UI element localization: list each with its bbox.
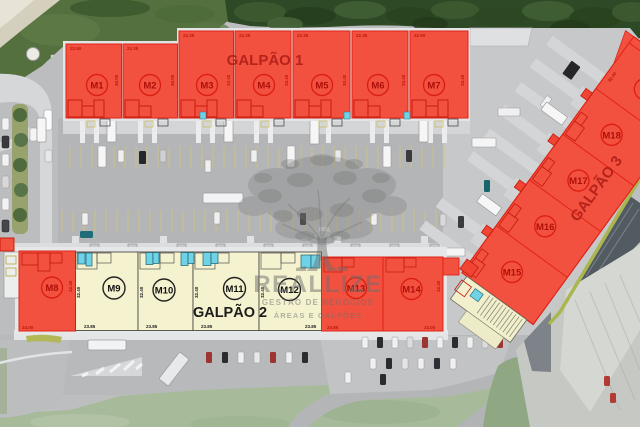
svg-text:M7: M7 [427, 81, 440, 92]
svg-text:33.40: 33.40 [226, 74, 231, 86]
svg-text:32.40: 32.40 [139, 286, 144, 298]
svg-text:32.40: 32.40 [436, 280, 441, 292]
svg-text:M4: M4 [257, 81, 271, 92]
svg-text:22.35: 22.35 [183, 33, 195, 38]
svg-text:M18: M18 [602, 130, 620, 141]
svg-text:22.50: 22.50 [70, 46, 82, 51]
svg-text:23.85: 23.85 [327, 325, 339, 330]
svg-text:32.40: 32.40 [76, 286, 81, 298]
svg-text:33.40: 33.40 [460, 74, 465, 86]
svg-text:M16: M16 [536, 222, 554, 233]
svg-text:M2: M2 [143, 81, 156, 92]
svg-text:M5: M5 [315, 81, 329, 92]
svg-text:32.40: 32.40 [68, 280, 73, 292]
svg-text:23.85: 23.85 [305, 324, 317, 329]
svg-text:22.35: 22.35 [127, 46, 139, 51]
svg-text:REALLIZE: REALLIZE [253, 271, 382, 298]
svg-text:M9: M9 [107, 284, 120, 295]
svg-text:M17: M17 [569, 176, 587, 187]
svg-text:23.85: 23.85 [84, 324, 96, 329]
svg-text:M11: M11 [226, 284, 245, 295]
svg-text:ÁREAS E GALPÕES: ÁREAS E GALPÕES [274, 311, 363, 320]
svg-text:GESTÃO DE NEGÓCIOS: GESTÃO DE NEGÓCIOS [262, 298, 374, 307]
svg-text:23.85: 23.85 [201, 324, 213, 329]
svg-text:M1: M1 [90, 81, 104, 92]
svg-text:24.00: 24.00 [424, 325, 436, 330]
svg-text:M8: M8 [45, 283, 58, 294]
svg-text:GALPÃO 1: GALPÃO 1 [227, 51, 304, 69]
svg-text:33.40: 33.40 [342, 74, 347, 86]
svg-text:M14: M14 [402, 285, 421, 296]
svg-text:24.00: 24.00 [22, 325, 34, 330]
svg-text:M15: M15 [503, 268, 522, 279]
svg-text:22.35: 22.35 [297, 33, 309, 38]
svg-text:M3: M3 [200, 81, 213, 92]
svg-text:32.40: 32.40 [194, 286, 199, 298]
svg-text:36.00: 36.00 [114, 74, 119, 86]
svg-text:33.40: 33.40 [284, 74, 289, 86]
svg-text:M6: M6 [371, 81, 384, 92]
svg-text:M10: M10 [155, 286, 173, 297]
svg-text:22.35: 22.35 [356, 33, 368, 38]
svg-text:22.35: 22.35 [239, 33, 251, 38]
svg-text:33.40: 33.40 [401, 74, 406, 86]
svg-text:GALPÃO 2: GALPÃO 2 [193, 303, 267, 321]
svg-text:22.50: 22.50 [414, 33, 426, 38]
svg-text:23.85: 23.85 [146, 324, 158, 329]
svg-text:36.00: 36.00 [170, 74, 175, 86]
